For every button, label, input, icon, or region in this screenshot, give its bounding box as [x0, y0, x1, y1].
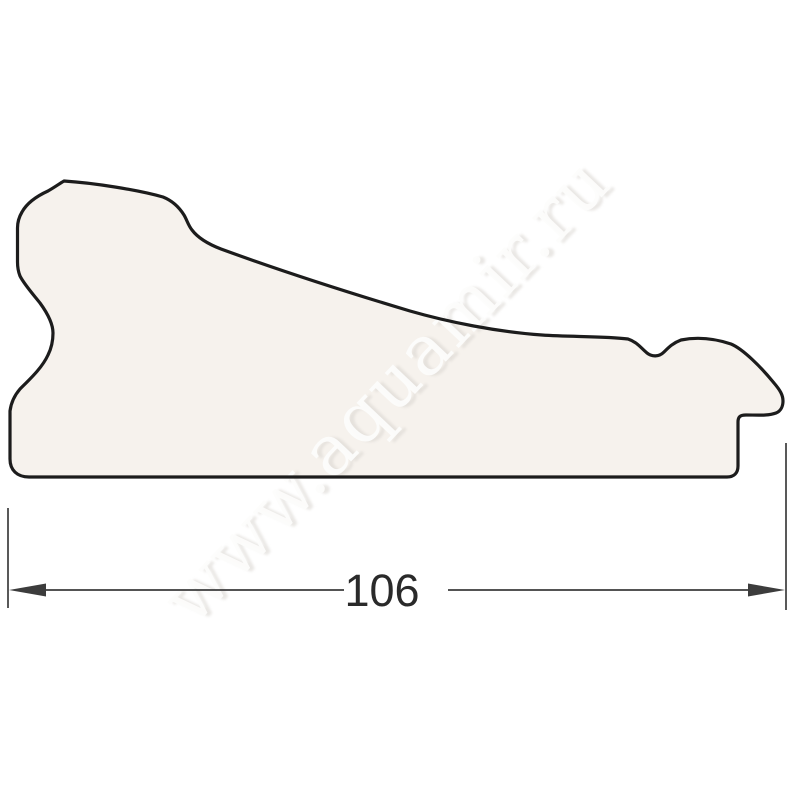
profile-drawing-canvas: www.aquamir.ru www.aquamir.ru 106: [0, 0, 800, 800]
dimension-arrow-left: [9, 584, 46, 597]
dimension-arrow-right: [748, 584, 785, 597]
profile-drawing-svg: www.aquamir.ru www.aquamir.ru 106: [0, 0, 800, 800]
dimension-value: 106: [344, 565, 419, 616]
